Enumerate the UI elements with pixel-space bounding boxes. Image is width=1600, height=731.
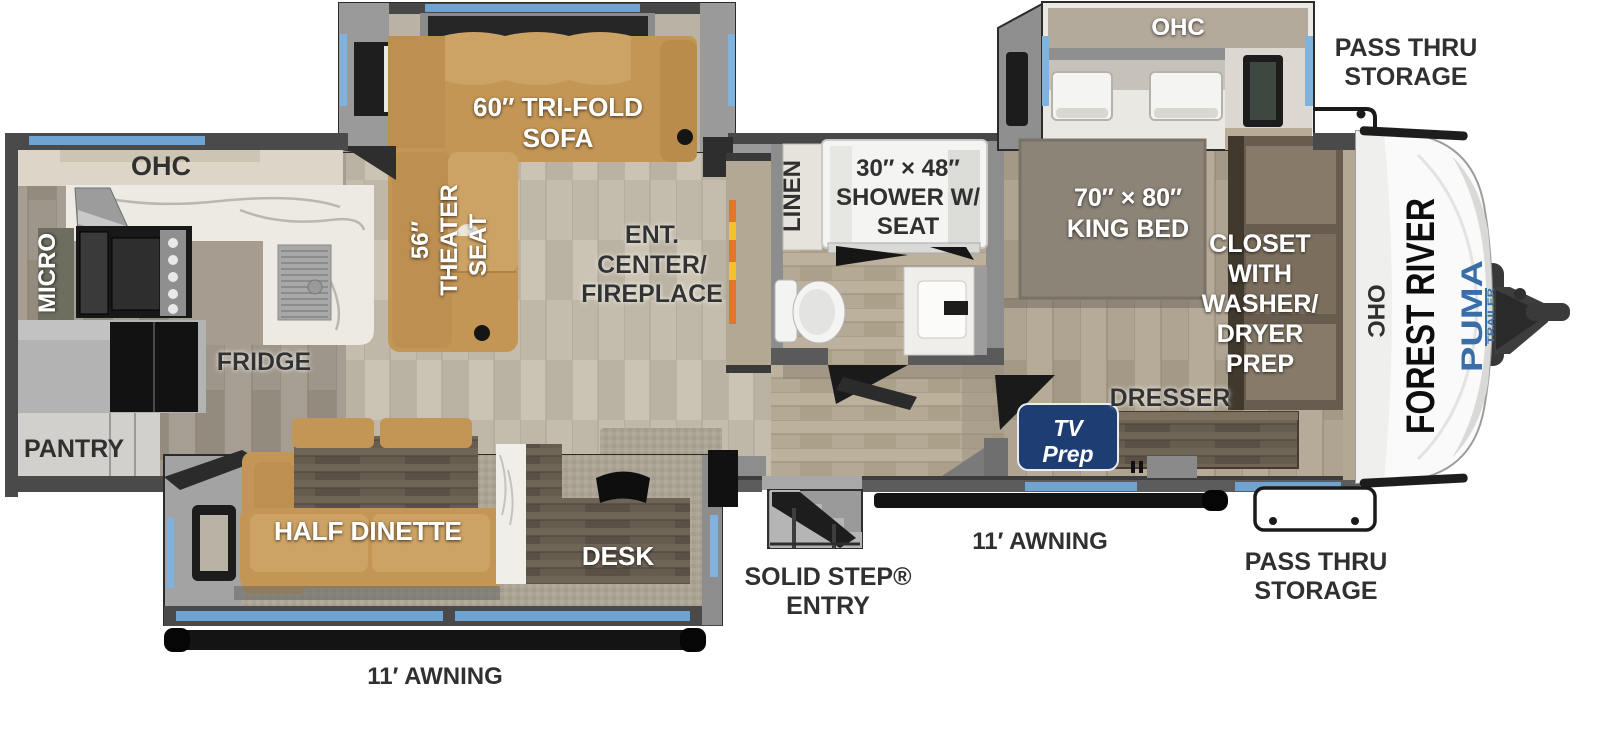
svg-text:ENTRY: ENTRY	[786, 592, 870, 620]
svg-text:11′ AWNING: 11′ AWNING	[972, 528, 1108, 555]
svg-text:SHOWER W/: SHOWER W/	[836, 184, 980, 211]
svg-text:PANTRY: PANTRY	[24, 435, 124, 463]
svg-text:Prep: Prep	[1042, 441, 1093, 467]
svg-text:LINEN: LINEN	[779, 160, 806, 232]
svg-text:DESK: DESK	[582, 541, 654, 571]
svg-text:SEAT: SEAT	[465, 214, 492, 277]
svg-text:FOREST RIVER: FOREST RIVER	[1399, 198, 1443, 434]
svg-text:KING BED: KING BED	[1067, 215, 1189, 243]
svg-text:TRAILER: TRAILER	[1486, 287, 1496, 344]
svg-text:THEATER: THEATER	[436, 184, 463, 296]
svg-text:PUMA: PUMA	[1456, 260, 1489, 372]
svg-text:ENT.: ENT.	[625, 221, 679, 249]
svg-text:MICRO: MICRO	[34, 233, 61, 313]
svg-text:SOLID STEP®: SOLID STEP®	[744, 563, 912, 591]
svg-text:PASS THRU: PASS THRU	[1245, 548, 1388, 576]
svg-text:70″ × 80″: 70″ × 80″	[1074, 184, 1182, 212]
svg-text:HALF DINETTE: HALF DINETTE	[274, 516, 462, 546]
svg-text:WASHER/: WASHER/	[1202, 290, 1319, 318]
svg-text:FRIDGE: FRIDGE	[217, 348, 311, 376]
svg-text:STORAGE: STORAGE	[1344, 63, 1467, 91]
svg-text:OHC: OHC	[131, 151, 191, 181]
svg-text:OHC: OHC	[1151, 14, 1204, 41]
svg-text:CLOSET: CLOSET	[1209, 230, 1310, 258]
svg-text:TV: TV	[1053, 415, 1084, 441]
svg-text:DRESSER: DRESSER	[1110, 384, 1231, 412]
svg-text:60″ TRI-FOLD: 60″ TRI-FOLD	[473, 92, 643, 122]
svg-text:PREP: PREP	[1226, 350, 1294, 378]
svg-text:FIREPLACE: FIREPLACE	[581, 280, 723, 308]
svg-text:OHC: OHC	[1362, 284, 1389, 337]
svg-text:PASS THRU: PASS THRU	[1335, 34, 1478, 62]
svg-text:SEAT: SEAT	[877, 213, 940, 240]
svg-text:CENTER/: CENTER/	[597, 251, 707, 279]
svg-text:30″ × 48″: 30″ × 48″	[856, 155, 960, 182]
svg-text:11′ AWNING: 11′ AWNING	[367, 663, 503, 690]
svg-text:DRYER: DRYER	[1217, 320, 1304, 348]
svg-text:STORAGE: STORAGE	[1254, 577, 1377, 605]
svg-text:SOFA: SOFA	[523, 123, 594, 153]
svg-text:WITH: WITH	[1228, 260, 1292, 288]
svg-text:56″: 56″	[407, 220, 434, 259]
